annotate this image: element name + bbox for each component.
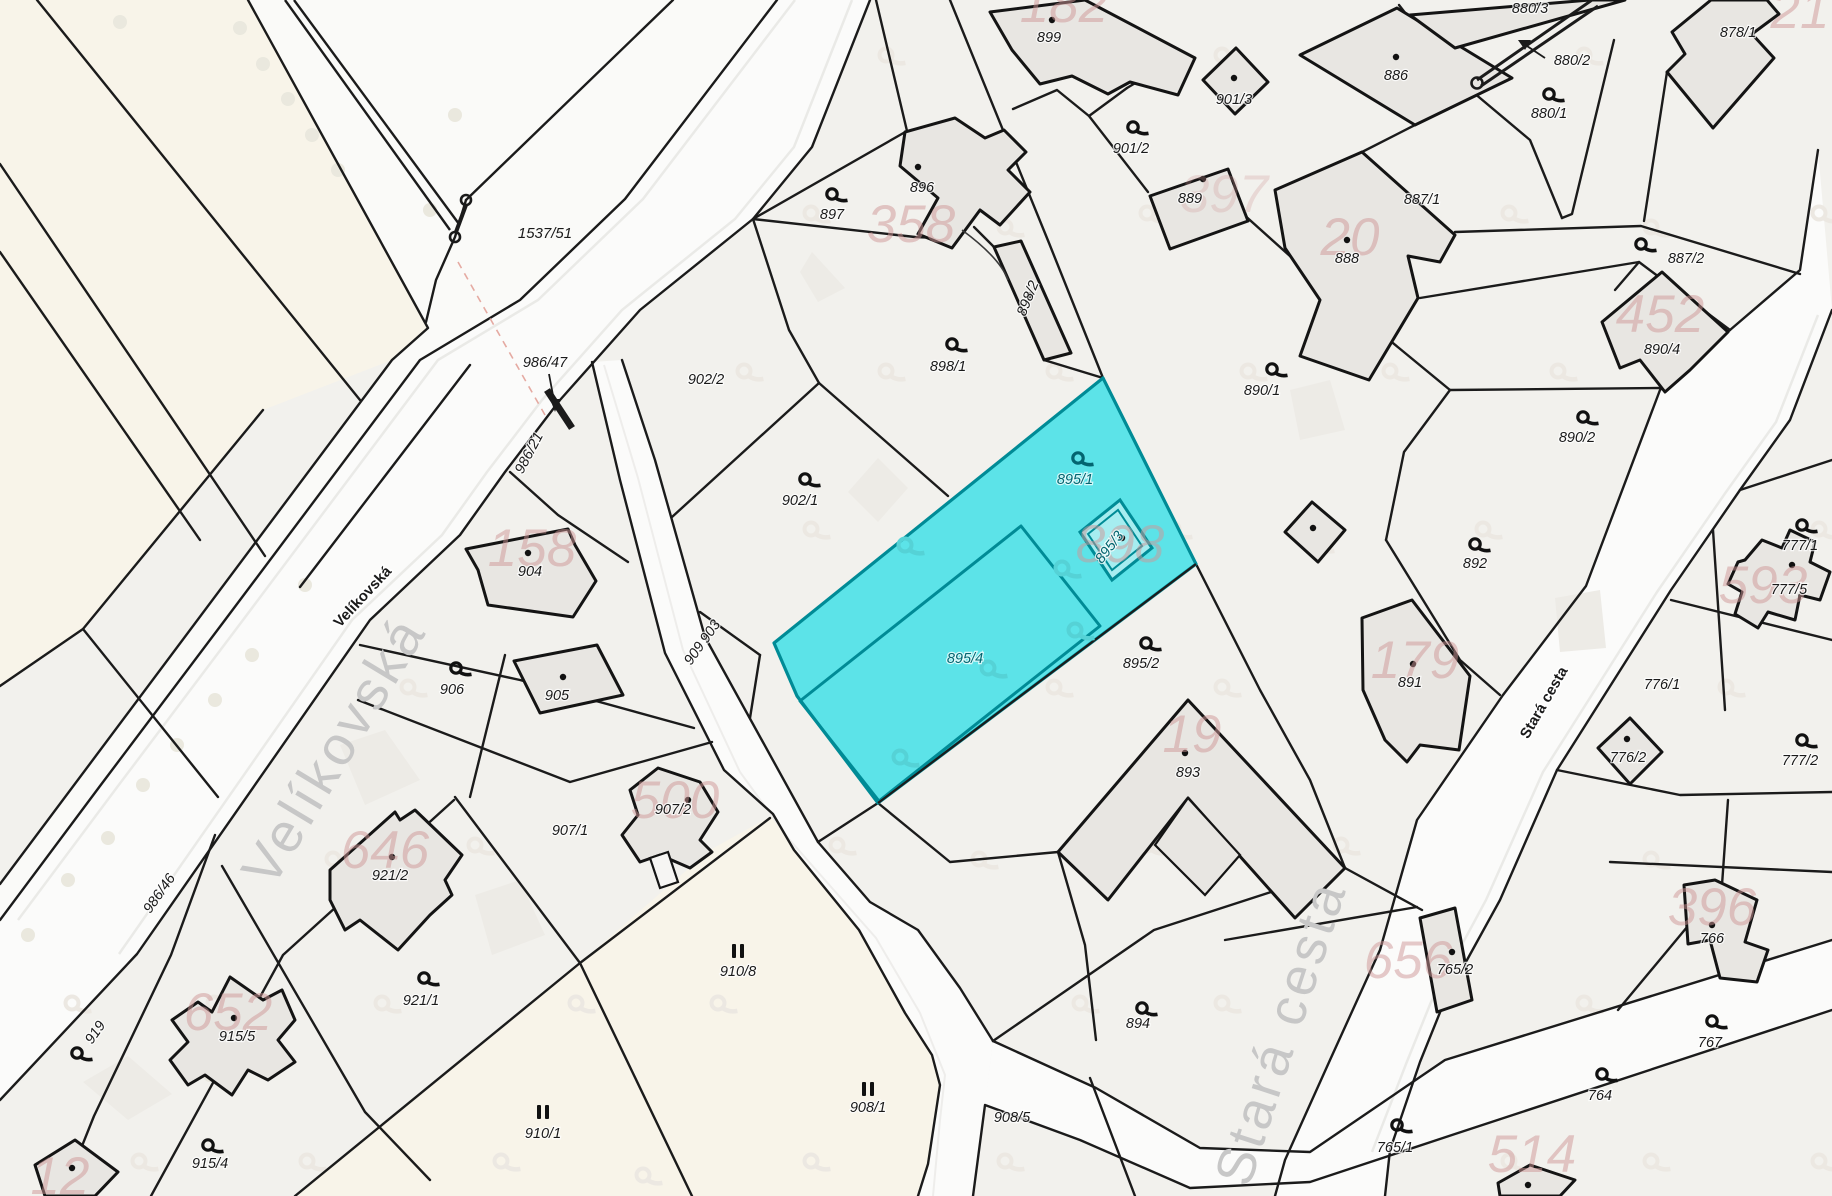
svg-text:888: 888: [1335, 251, 1359, 267]
svg-text:878/1: 878/1: [1720, 25, 1756, 41]
svg-text:902/2: 902/2: [688, 372, 724, 388]
svg-text:889: 889: [1178, 191, 1202, 207]
svg-text:910/8: 910/8: [720, 964, 756, 980]
svg-text:764: 764: [1588, 1088, 1612, 1104]
svg-text:452: 452: [1616, 285, 1704, 344]
svg-text:896: 896: [910, 180, 935, 196]
svg-text:182: 182: [1020, 0, 1108, 34]
svg-text:890/1: 890/1: [1244, 383, 1280, 399]
svg-text:898/1: 898/1: [930, 359, 966, 375]
svg-text:12: 12: [31, 1147, 90, 1196]
svg-text:777/2: 777/2: [1782, 753, 1818, 769]
svg-text:21: 21: [1770, 0, 1830, 40]
svg-text:910/1: 910/1: [525, 1126, 561, 1142]
svg-text:887/2: 887/2: [1668, 251, 1704, 267]
svg-text:880/3: 880/3: [1512, 1, 1548, 17]
svg-text:908/5: 908/5: [994, 1110, 1031, 1126]
svg-text:895/2: 895/2: [1123, 656, 1159, 672]
svg-text:921/1: 921/1: [403, 993, 439, 1009]
svg-text:915/5: 915/5: [219, 1029, 256, 1045]
svg-text:776/1: 776/1: [1644, 677, 1680, 693]
svg-text:765/2: 765/2: [1437, 962, 1473, 978]
svg-text:908/1: 908/1: [850, 1100, 886, 1116]
svg-text:777/1: 777/1: [1782, 538, 1818, 554]
svg-text:895/4: 895/4: [947, 651, 983, 667]
svg-text:514: 514: [1488, 1125, 1576, 1184]
svg-text:766: 766: [1700, 931, 1725, 947]
svg-text:986/47: 986/47: [523, 355, 568, 371]
svg-text:893: 893: [1176, 765, 1200, 781]
svg-text:777/5: 777/5: [1771, 582, 1808, 598]
svg-text:901/2: 901/2: [1113, 141, 1149, 157]
svg-text:892: 892: [1463, 556, 1487, 572]
svg-text:656: 656: [1364, 931, 1453, 990]
svg-text:905: 905: [545, 688, 570, 704]
svg-text:901/3: 901/3: [1216, 92, 1252, 108]
svg-text:886: 886: [1384, 68, 1409, 84]
svg-text:887/1: 887/1: [1404, 192, 1440, 208]
svg-text:902/1: 902/1: [782, 493, 818, 509]
svg-text:1537/51: 1537/51: [518, 225, 572, 242]
svg-text:890/4: 890/4: [1644, 342, 1680, 358]
svg-text:895/1: 895/1: [1057, 472, 1093, 488]
svg-text:907/2: 907/2: [655, 802, 691, 818]
svg-text:19: 19: [1163, 705, 1222, 764]
svg-text:358: 358: [867, 195, 956, 254]
svg-text:890/2: 890/2: [1559, 430, 1595, 446]
svg-text:906: 906: [440, 682, 465, 698]
svg-text:767: 767: [1698, 1035, 1723, 1051]
svg-text:776/2: 776/2: [1610, 750, 1646, 766]
svg-text:904: 904: [518, 564, 542, 580]
svg-text:894: 894: [1126, 1016, 1150, 1032]
svg-text:897: 897: [820, 207, 845, 223]
svg-text:907/1: 907/1: [552, 823, 588, 839]
svg-text:500: 500: [631, 771, 720, 830]
svg-text:396: 396: [1668, 878, 1757, 937]
svg-text:899: 899: [1037, 30, 1061, 46]
svg-text:891: 891: [1398, 675, 1422, 691]
svg-text:921/2: 921/2: [372, 868, 408, 884]
svg-text:765/1: 765/1: [1377, 1140, 1413, 1156]
svg-text:915/4: 915/4: [192, 1156, 228, 1172]
svg-text:880/1: 880/1: [1531, 106, 1567, 122]
svg-text:880/2: 880/2: [1554, 53, 1590, 69]
